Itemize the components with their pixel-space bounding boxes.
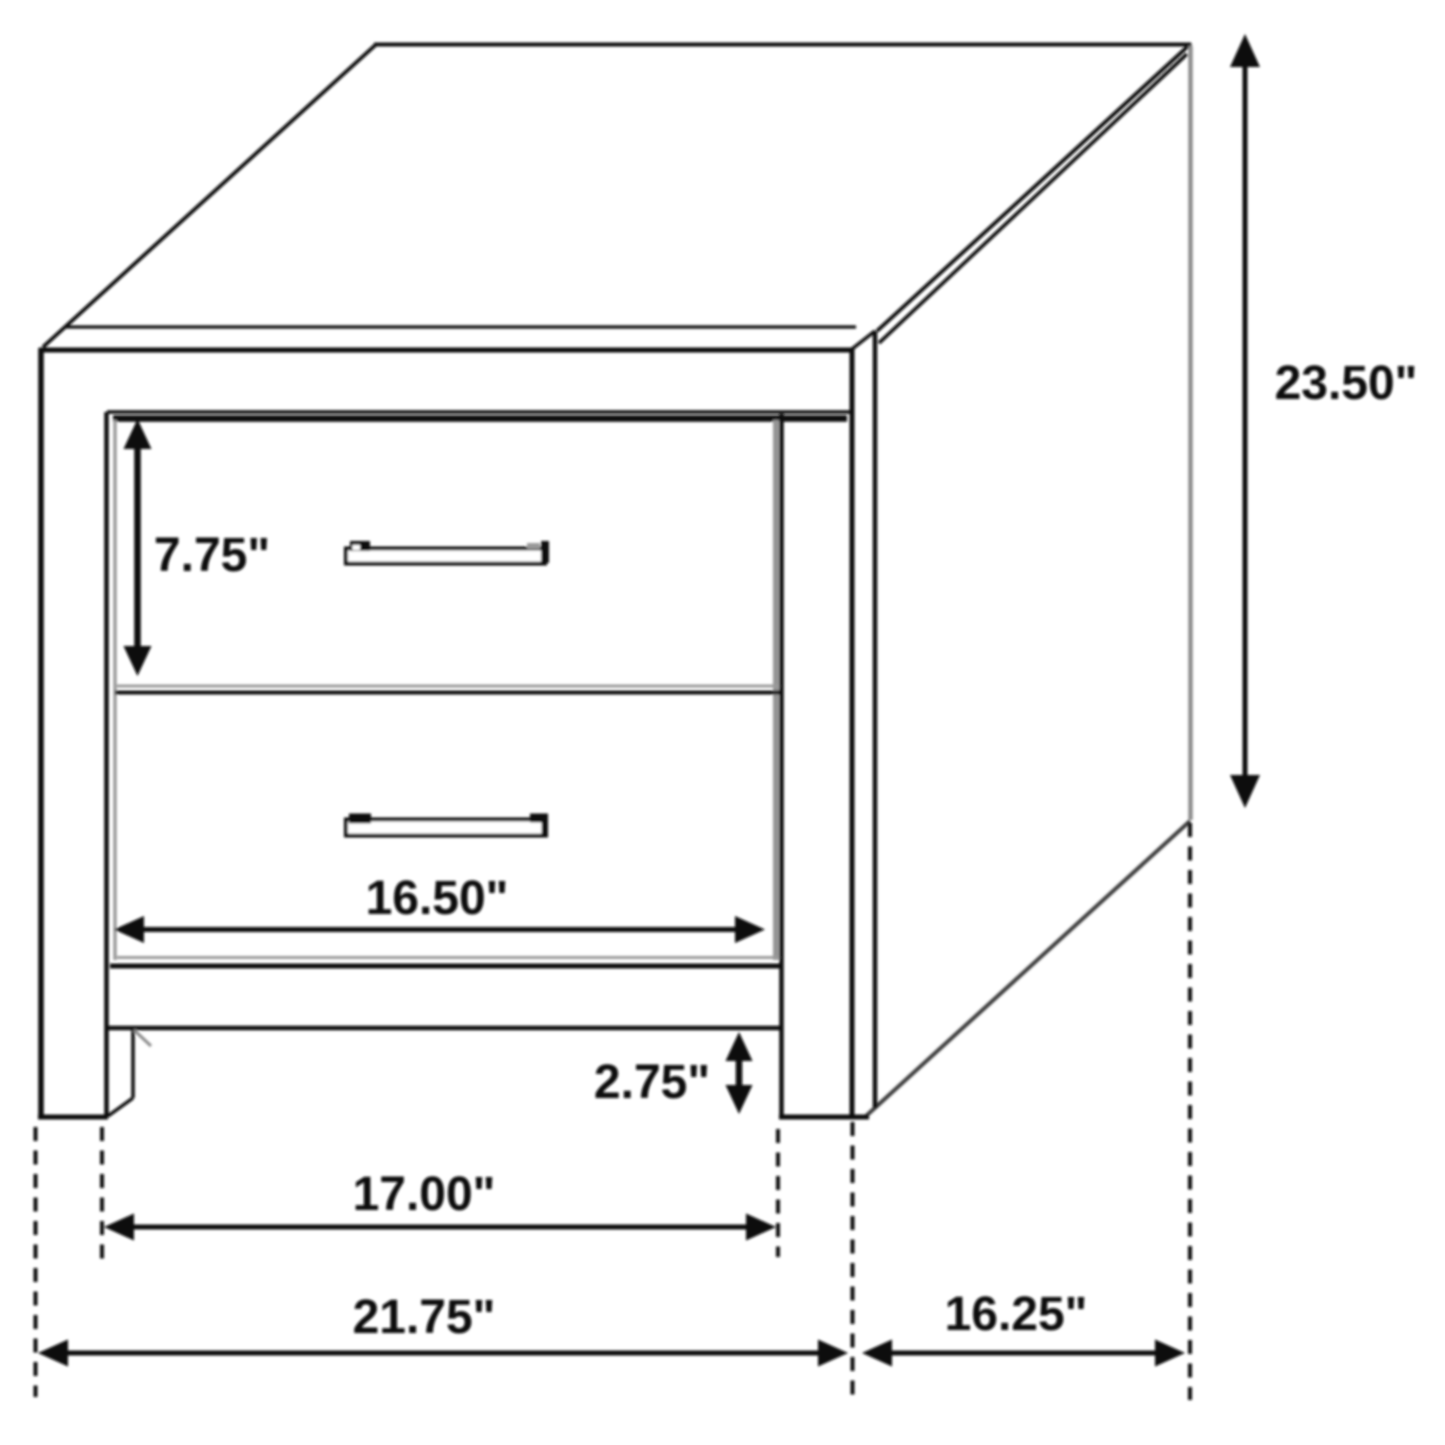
svg-text:2.75": 2.75" <box>594 1056 710 1109</box>
svg-text:23.50": 23.50" <box>1275 357 1418 410</box>
svg-text:16.25": 16.25" <box>945 1288 1088 1341</box>
svg-text:17.00": 17.00" <box>353 1168 496 1221</box>
svg-text:7.75": 7.75" <box>154 529 270 582</box>
svg-text:16.50": 16.50" <box>366 872 509 925</box>
svg-text:21.75": 21.75" <box>353 1291 496 1344</box>
